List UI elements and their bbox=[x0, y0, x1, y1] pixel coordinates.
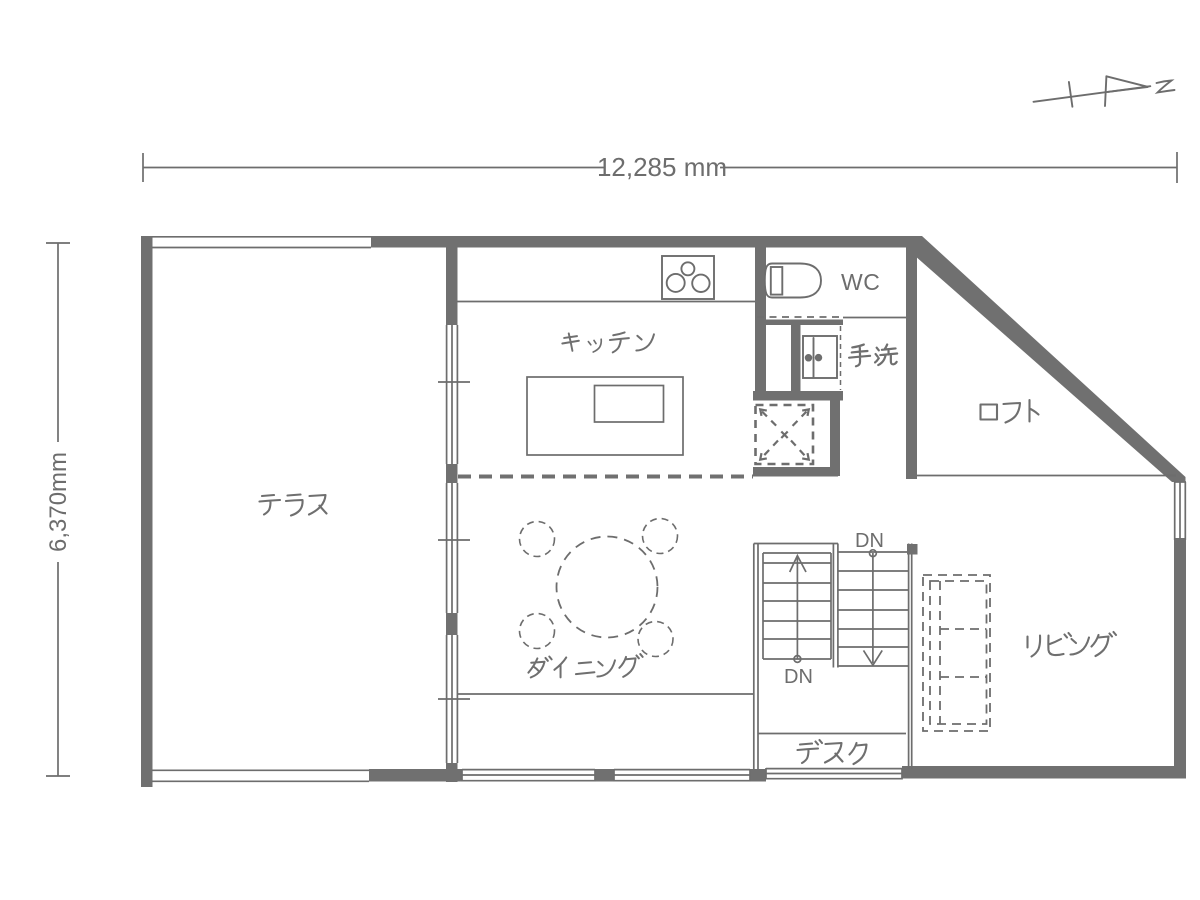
svg-text:WC: WC bbox=[841, 269, 880, 295]
svg-text:DN: DN bbox=[784, 666, 813, 688]
svg-text:12,285 mm: 12,285 mm bbox=[597, 152, 727, 182]
svg-text:6,370mm: 6,370mm bbox=[45, 452, 72, 552]
svg-text:DN: DN bbox=[855, 530, 884, 552]
